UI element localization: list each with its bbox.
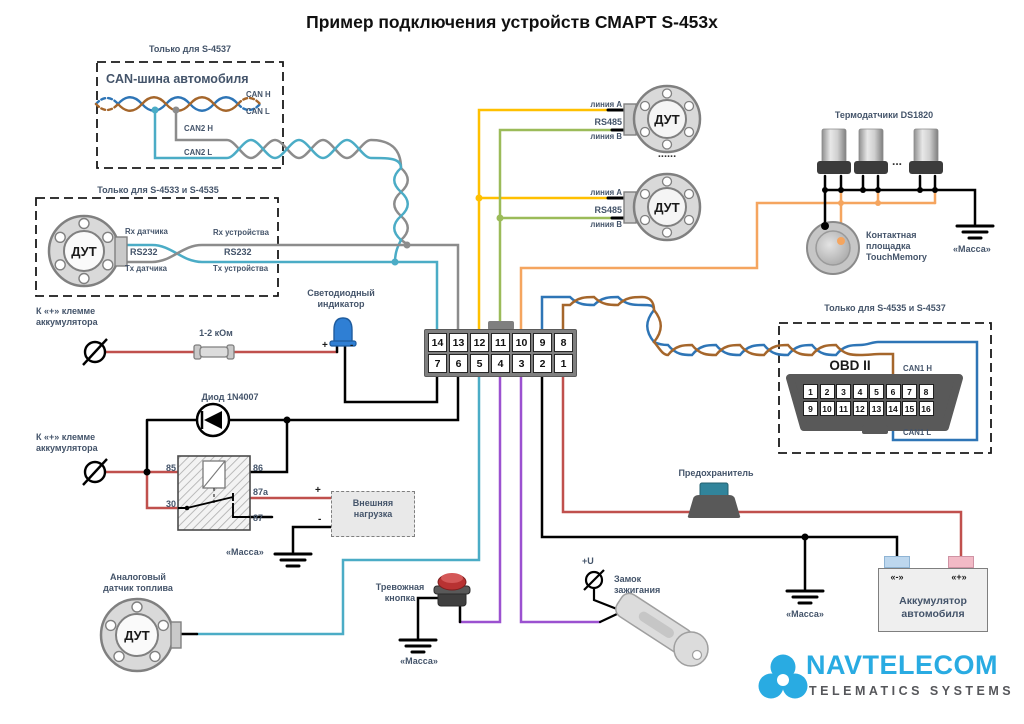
line-b-1-label: линия B (578, 132, 622, 141)
obd-pin: 16 (919, 401, 934, 416)
thermo-title: Термодатчики DS1820 (826, 110, 942, 121)
obd-pin-row-bottom: 910111213141516 (803, 401, 934, 416)
can1-l-label: CAN1 L (903, 428, 931, 437)
rs485-1-label: RS485 (588, 117, 622, 128)
obd-box-caption: Только для S-4535 и S-4537 (795, 303, 975, 314)
rs232-sensor-label: RS232 (130, 247, 158, 258)
device-pin-row-bottom: 7654321 (428, 354, 573, 373)
obd-pin: 5 (869, 384, 884, 399)
device-pin: 14 (428, 333, 447, 352)
alarm-button-label: Тревожная кнопка (368, 582, 432, 604)
obd-pin: 8 (919, 384, 934, 399)
dut-label-rs232: ДУТ (61, 244, 107, 260)
tx-device-label: Tx устройства (213, 264, 268, 273)
device-connector: 141312111098 7654321 (424, 329, 577, 377)
can-h-label: CAN H (246, 90, 271, 99)
ground-icon-battery (787, 591, 823, 603)
ignition-key-symbol (612, 590, 708, 666)
relay-pin-87: 87 (253, 513, 263, 524)
device-pin: 6 (449, 354, 468, 373)
battery-plus-terminal-label-1: К «+» клемме аккумулятора (36, 306, 112, 328)
obd-pin: 2 (820, 384, 835, 399)
obd-pin: 13 (869, 401, 884, 416)
battery-plus-terminal (948, 556, 974, 568)
ground-label-battery: «Масса» (779, 609, 831, 620)
alarm-button-symbol (434, 573, 470, 606)
obd-pin: 4 (853, 384, 868, 399)
navtelecom-logo-icon (759, 655, 808, 699)
diode-symbol (197, 404, 229, 436)
logo-brand: NAVTELECOM (806, 650, 998, 681)
led-label: Светодиодный индикатор (301, 288, 381, 310)
load-label: Внешняя нагрузка (333, 498, 413, 520)
can-box-heading: CAN-шина автомобиля (106, 72, 266, 87)
logo-tagline: TELEMATICS SYSTEMS (809, 684, 1014, 698)
rs232-box-caption: Только для S-4533 и S-4535 (78, 185, 238, 196)
touch-pad-label: Контактная площадка TouchMemory (866, 230, 936, 262)
relay-pin-85: 85 (160, 463, 176, 474)
relay-pin-30: 30 (160, 499, 176, 510)
device-pin: 3 (512, 354, 531, 373)
can2-h-label: CAN2 H (184, 124, 213, 133)
fuse-label: Предохранитель (672, 468, 760, 479)
ground-label-load: «Масса» (226, 547, 264, 558)
wiring-diagram-page: Пример подключения устройств СМАРТ S-453… (0, 0, 1024, 724)
device-pin: 12 (470, 333, 489, 352)
led-minus: - (350, 340, 353, 352)
ignition-label: Замок зажигания (614, 574, 680, 596)
obd-pin-row-top: 12345678 (803, 384, 934, 399)
load-plus: + (315, 485, 321, 497)
thermo-ellipsis: ... (892, 154, 902, 168)
obd-pin: 10 (820, 401, 835, 416)
can-l-label: CAN L (246, 107, 270, 116)
relay-pin-86: 86 (253, 463, 263, 474)
terminal-icon-relay (83, 459, 107, 485)
battery-plus-label: «+» (946, 572, 972, 583)
rs232-device-label: RS232 (224, 247, 252, 258)
obd-pin-grid: 12345678 910111213141516 (803, 384, 934, 416)
load-minus: - (318, 514, 321, 526)
obd-pin: 6 (886, 384, 901, 399)
terminal-icon-led (83, 339, 107, 365)
touch-memory-pad (807, 222, 859, 274)
tx-sensor-label: Tx датчика (125, 264, 167, 273)
obd-pin: 9 (803, 401, 818, 416)
dut-label-rs485-2: ДУТ (644, 200, 690, 216)
line-a-2-label: линия А (578, 188, 622, 197)
dut-label-analog: ДУТ (114, 628, 160, 644)
diode-label: Диод 1N4007 (192, 392, 268, 403)
line-a-1-label: линия А (578, 100, 622, 109)
obd-pin: 15 (902, 401, 917, 416)
device-pin: 11 (491, 333, 510, 352)
rs485-2-label: RS485 (588, 205, 622, 216)
obd-pin: 11 (836, 401, 851, 416)
line-b-2-label: линия B (578, 220, 622, 229)
device-pin-row-top: 141312111098 (428, 333, 573, 352)
sensors-dots: ...... (644, 148, 690, 161)
ground-label-thermo: «Масса» (953, 244, 991, 255)
device-pin: 8 (554, 333, 573, 352)
rs232-wires (127, 245, 458, 331)
ground-icon-thermo (957, 226, 993, 238)
can1-h-label: CAN1 H (903, 364, 932, 373)
obd-pin: 7 (902, 384, 917, 399)
page-title: Пример подключения устройств СМАРТ S-453… (212, 12, 812, 33)
terminal-icon-ignition (584, 570, 604, 590)
device-pin: 5 (470, 354, 489, 373)
can2-l-label: CAN2 L (184, 148, 212, 157)
obd-pin: 14 (886, 401, 901, 416)
device-pin: 7 (428, 354, 447, 373)
thermo-sensors (817, 129, 943, 174)
battery-plus-terminal-label-2: К «+» клемме аккумулятора (36, 432, 112, 454)
device-pin: 10 (512, 333, 531, 352)
obd-pin: 12 (853, 401, 868, 416)
device-pin: 13 (449, 333, 468, 352)
device-pin: 4 (491, 354, 510, 373)
battery-minus-label: «-» (884, 572, 910, 583)
device-pin: 9 (533, 333, 552, 352)
dut-label-rs485-1: ДУТ (644, 112, 690, 128)
device-pin: 2 (533, 354, 552, 373)
relay-symbol (178, 456, 250, 530)
device-pin: 1 (554, 354, 573, 373)
obd-pin: 1 (803, 384, 818, 399)
led-plus: + (322, 340, 328, 352)
ground-label-button: «Масса» (394, 656, 444, 667)
can-box-caption: Только для S-4537 (118, 44, 262, 55)
fuse-symbol (688, 483, 740, 518)
fuel-sensor-label: Аналоговый датчик топлива (96, 572, 180, 594)
ground-icon-button (400, 640, 436, 652)
obd-pin: 3 (836, 384, 851, 399)
battery-name-label: Аккумулятор автомобиля (880, 595, 986, 620)
ignition-plus-u-label: +U (582, 556, 594, 567)
relay-pin-87a: 87a (253, 487, 268, 498)
battery-minus-terminal (884, 556, 910, 568)
resistor-symbol (194, 345, 234, 359)
rx-device-label: Rx устройства (213, 228, 269, 237)
obd-title: OBD II (825, 358, 875, 374)
resistor-label: 1-2 кОм (194, 328, 238, 339)
ground-icon-load (275, 554, 311, 566)
rx-sensor-label: Rx датчика (125, 227, 168, 236)
